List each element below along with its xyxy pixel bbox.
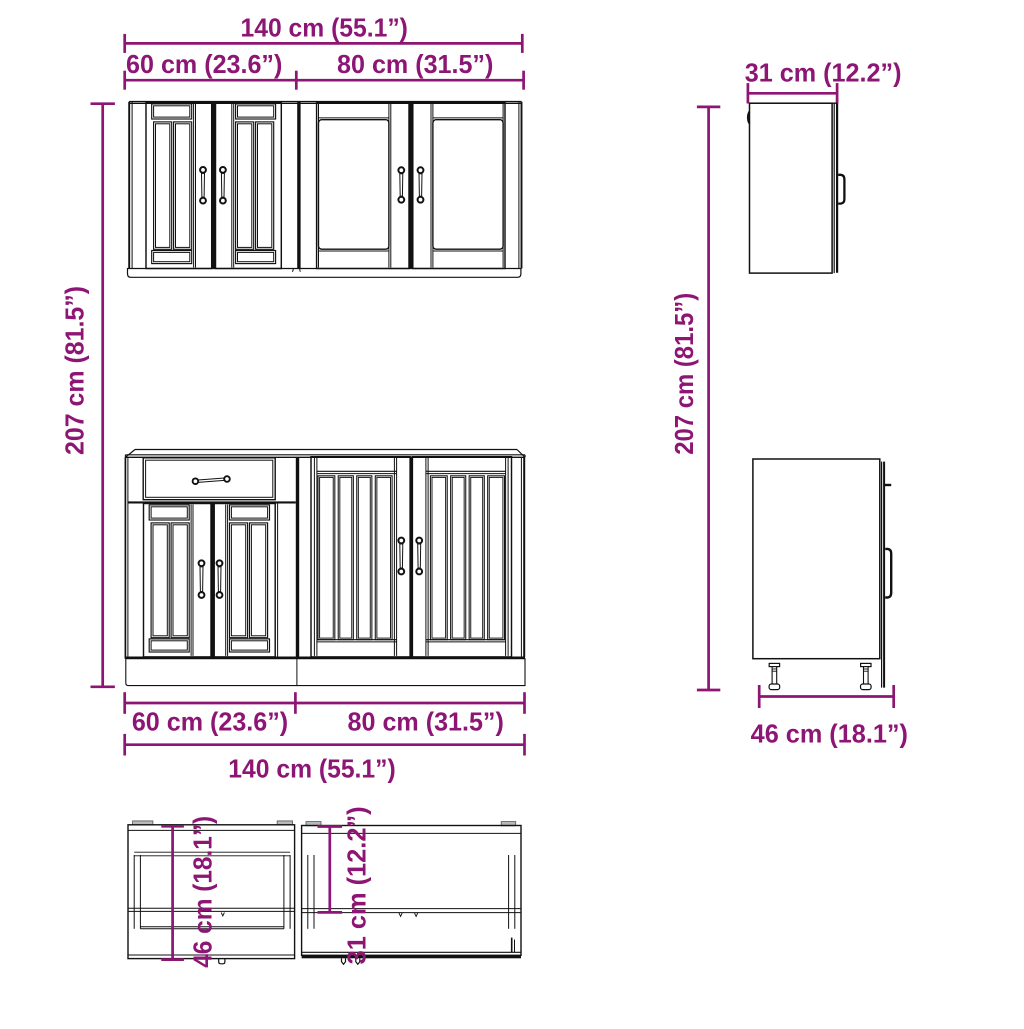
- svg-text:46 cm (18.1”): 46 cm (18.1”): [187, 816, 217, 968]
- svg-text:80 cm (31.5”): 80 cm (31.5”): [348, 706, 504, 736]
- svg-text:46 cm (18.1”): 46 cm (18.1”): [751, 719, 908, 749]
- svg-text:60 cm (23.6”): 60 cm (23.6”): [132, 706, 288, 736]
- svg-text:31 cm (12.2”): 31 cm (12.2”): [342, 806, 372, 964]
- svg-text:207 cm (81.5”): 207 cm (81.5”): [669, 293, 699, 455]
- svg-text:140 cm (55.1”): 140 cm (55.1”): [228, 754, 395, 784]
- svg-text:140 cm (55.1”): 140 cm (55.1”): [241, 13, 408, 43]
- svg-text:207 cm (81.5”): 207 cm (81.5”): [60, 286, 90, 455]
- svg-text:60 cm (23.6”): 60 cm (23.6”): [126, 49, 282, 79]
- svg-text:31 cm (12.2”): 31 cm (12.2”): [745, 58, 902, 88]
- svg-text:80 cm (31.5”): 80 cm (31.5”): [337, 49, 493, 79]
